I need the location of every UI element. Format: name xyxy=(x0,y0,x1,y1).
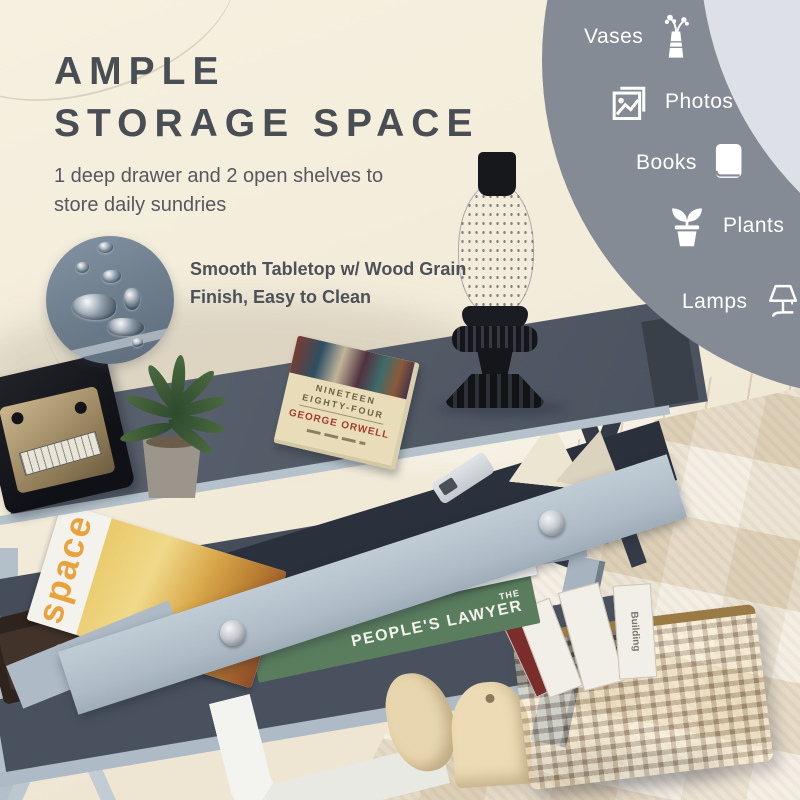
water-droplet xyxy=(124,288,140,310)
storage-item-photos: Photos xyxy=(608,80,733,124)
water-droplet xyxy=(72,294,116,320)
storage-item-vases: Vases xyxy=(584,14,696,60)
storage-item-books: Books xyxy=(636,140,748,186)
plant-icon xyxy=(664,203,710,249)
headline: AMPLE STORAGE SPACE xyxy=(54,46,479,150)
storage-item-label: Vases xyxy=(584,25,643,49)
oil-lamp-glass xyxy=(458,182,534,316)
tabletop-callout: Smooth Tabletop w/ Wood Grain Finish, Ea… xyxy=(190,256,466,312)
water-droplet xyxy=(132,338,143,347)
radio-knob xyxy=(74,401,88,415)
product-photo: Building THE PEOPLE'S LAWYER ROCKY space xyxy=(0,0,800,800)
storage-item-plants: Plants xyxy=(664,203,784,249)
headline-line2: STORAGE SPACE xyxy=(54,102,479,145)
book-icon xyxy=(710,140,748,186)
callout-line2: Finish, Easy to Clean xyxy=(190,287,371,307)
photos-icon xyxy=(608,80,652,124)
drawer-knob xyxy=(539,510,565,536)
oil-lamp-chimney xyxy=(478,152,516,196)
storage-item-lamps: Lamps xyxy=(682,280,800,324)
storage-item-label: Lamps xyxy=(682,290,748,314)
magazine-in-basket: Building xyxy=(613,583,657,679)
headline-line1: AMPLE xyxy=(54,50,226,93)
subheadline: 1 deep drawer and 2 open shelves to stor… xyxy=(54,162,383,220)
vase-icon xyxy=(656,14,696,60)
water-droplet xyxy=(108,318,144,336)
radio-dial xyxy=(19,431,103,476)
subheadline-line2: store daily sundries xyxy=(54,194,226,216)
radio-knob xyxy=(10,411,24,425)
lamp-icon xyxy=(761,280,800,324)
wicker-basket: Building xyxy=(511,604,773,791)
storage-item-label: Photos xyxy=(665,90,733,114)
water-droplet xyxy=(102,270,121,283)
subheadline-line1: 1 deep drawer and 2 open shelves to xyxy=(54,165,383,187)
water-droplet xyxy=(98,242,113,253)
storage-item-label: Books xyxy=(636,151,697,175)
storage-item-label: Plants xyxy=(723,214,784,238)
water-droplet xyxy=(76,262,89,273)
water-resistance-inset xyxy=(46,236,174,364)
drawer-knob xyxy=(220,620,246,646)
radio-face xyxy=(0,386,116,494)
callout-line1: Smooth Tabletop w/ Wood Grain xyxy=(190,259,466,279)
magazine-spine-text: Building xyxy=(628,611,642,652)
